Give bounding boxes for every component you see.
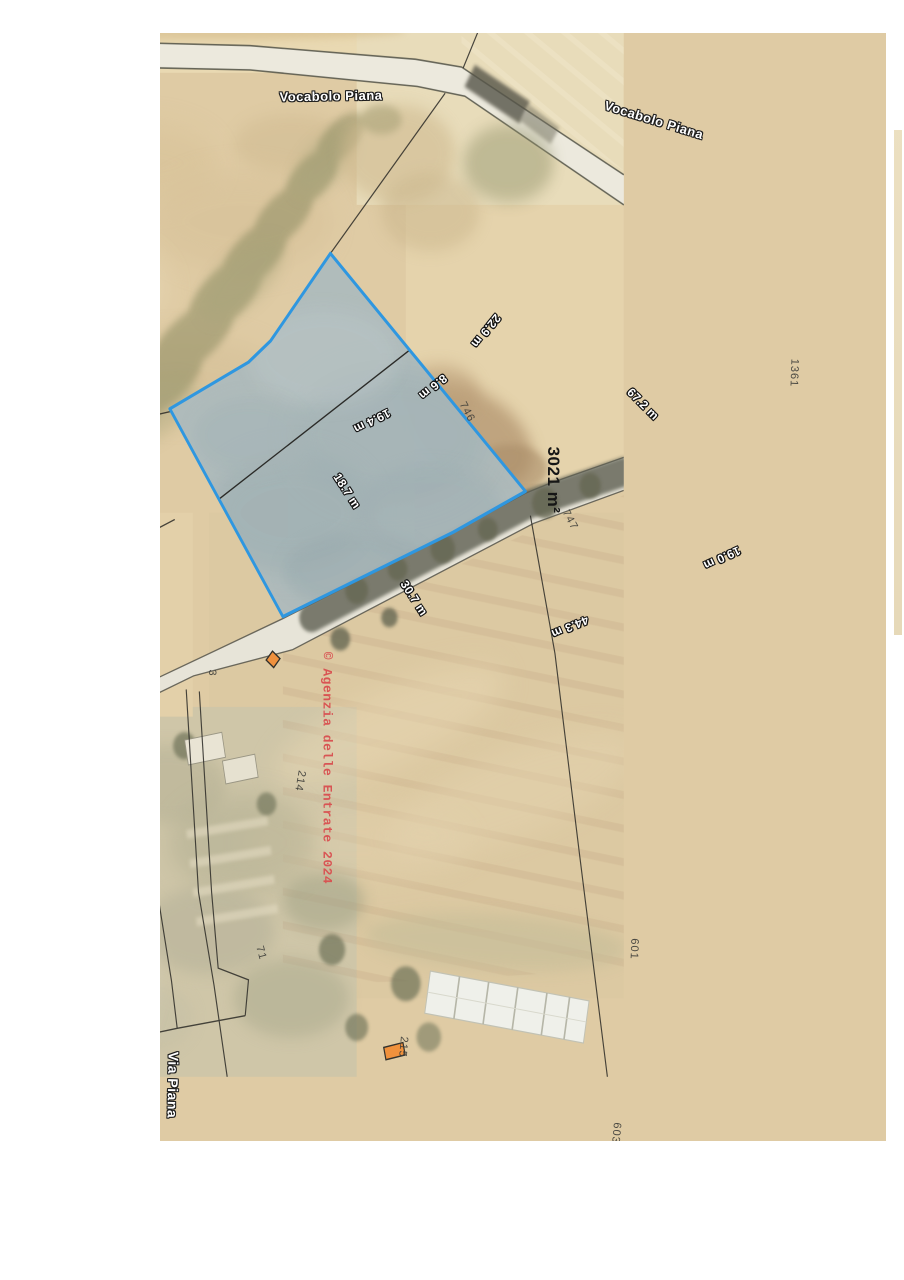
road-label-via-piana: Via Piana [164,1052,181,1119]
map-graphics [160,33,886,1141]
map-canvas: Vocabolo Piana Vocabolo Piana Via Piana … [160,33,886,1141]
parcel-number-603: 603 [609,1122,623,1141]
parcel-area-label: 3021 m² [543,447,563,514]
road-label-vocabolo-piana-1: Vocabolo Piana [279,88,382,105]
parcel-number-1361: 1361 [788,359,801,388]
parcel-number-215: 215 [396,1036,410,1058]
watermark-agenzia-entrate: © Agenzia delle Entrate 2024 [320,652,335,884]
parcel-number-3: 3 [206,669,218,676]
scan-edge-artifact [894,130,902,635]
parcel-number-601: 601 [628,938,641,960]
cadastral-map-page: Vocabolo Piana Vocabolo Piana Via Piana … [0,0,904,1280]
